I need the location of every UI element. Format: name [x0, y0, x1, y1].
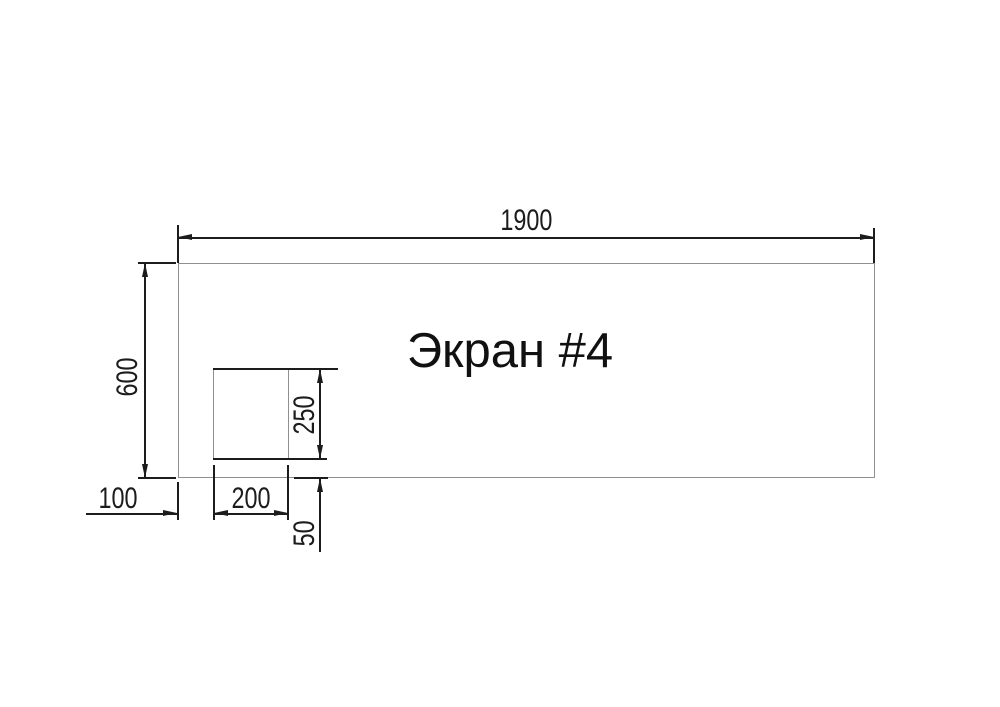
height-dim-arrow-bottom [142, 464, 148, 478]
cutout-width-dim-label: 200 [201, 484, 301, 514]
width-dim-ext-left [177, 225, 179, 263]
height-dim-label: 600 [113, 327, 143, 427]
height-dim-arrow-top [142, 263, 148, 277]
width-dim-line [178, 237, 874, 239]
offset-left-dim-ext [177, 482, 179, 520]
offset-bottom-dim-label: 50 [290, 483, 320, 583]
width-dim-arrow-right [860, 234, 874, 240]
width-dim-arrow-left [178, 234, 192, 240]
cutout-height-dim-label: 250 [290, 365, 320, 465]
technical-drawing: Экран #4 1900 600 100 200 250 50 [0, 0, 1000, 707]
offset-left-dim-label: 100 [68, 484, 168, 514]
drawing-title: Экран #4 [360, 322, 660, 380]
cutout-outline-rect [213, 368, 289, 459]
width-dim-label: 1900 [466, 206, 586, 236]
height-dim-line [144, 263, 146, 478]
